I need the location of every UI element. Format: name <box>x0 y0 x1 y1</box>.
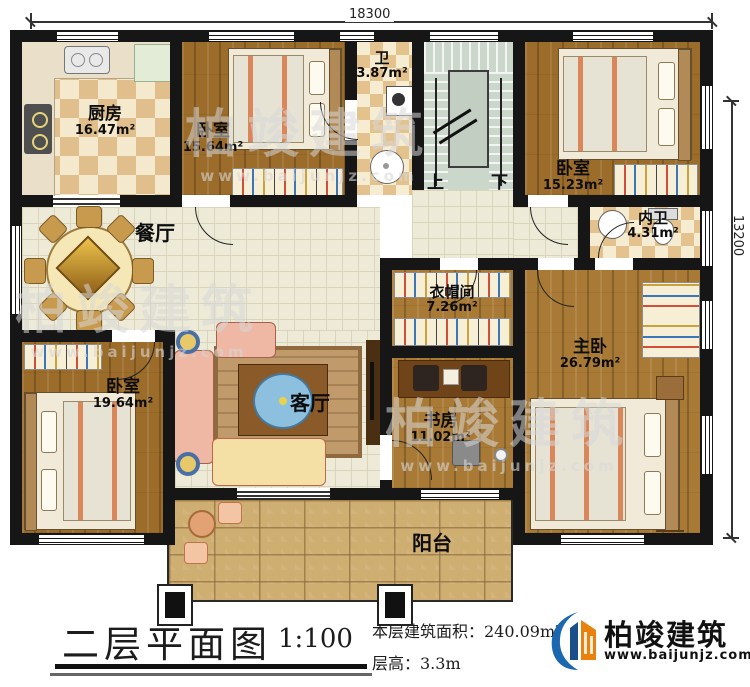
side-table <box>176 330 200 354</box>
room-label-bedroom-top: 卧室 15.64m² <box>168 122 258 155</box>
master-wardrobe <box>642 282 700 358</box>
stove <box>24 104 52 154</box>
desk-chair <box>461 365 487 391</box>
title-underline <box>55 664 367 669</box>
pillow <box>309 61 325 95</box>
burner <box>32 134 48 150</box>
plan-scale: 1:100 <box>278 624 353 654</box>
washing-machine <box>386 86 413 116</box>
room-label-living: 客厅 <box>270 392 350 414</box>
sink-basin <box>89 53 103 67</box>
pillow <box>41 469 57 511</box>
pillow <box>644 413 661 457</box>
window <box>339 30 375 42</box>
wall <box>412 42 424 190</box>
wall <box>392 346 513 358</box>
headboard <box>329 49 341 151</box>
desk-pad <box>443 369 459 385</box>
logo-icon <box>548 610 600 672</box>
side-table <box>176 452 200 476</box>
refrigerator <box>134 44 172 82</box>
nightstand <box>656 376 684 400</box>
room-label-bedroom-topright: 卧室 15.23m² <box>528 160 618 193</box>
kitchen-sink <box>64 46 110 74</box>
hallway-floor-a <box>412 190 513 258</box>
window <box>38 533 145 545</box>
window <box>700 85 713 150</box>
floor-plan-page: { "dimensions": { "width_label": "18300"… <box>0 0 750 687</box>
window <box>560 533 645 545</box>
wall <box>163 488 237 500</box>
dimension-line-right <box>731 100 733 538</box>
burner <box>32 112 48 128</box>
waste-bin <box>494 448 508 462</box>
window <box>700 415 713 475</box>
wardrobe <box>232 168 343 196</box>
headboard <box>25 393 37 531</box>
headboard <box>665 399 679 531</box>
window <box>10 225 22 315</box>
wall <box>170 42 182 200</box>
window <box>429 30 499 42</box>
wall <box>345 195 357 207</box>
dining-living-floor-joint <box>175 330 380 342</box>
sliding-door-rail <box>237 491 330 493</box>
room-label-bathroom: 卫 3.87m² <box>352 50 412 81</box>
wall <box>10 330 112 342</box>
dining-chair <box>76 206 102 228</box>
room-label-ensuite: 内卫 4.31m² <box>618 210 688 241</box>
desk-chair <box>413 365 439 391</box>
pillow <box>658 62 675 100</box>
dimension-height-label: 13200 <box>730 211 745 260</box>
wall <box>380 258 392 435</box>
dimension-end <box>723 537 739 539</box>
wall <box>120 195 182 207</box>
bed <box>24 392 136 530</box>
balcony-chair <box>184 542 208 564</box>
basin-drain <box>383 163 389 169</box>
wardrobe <box>24 344 102 370</box>
wall <box>230 195 345 207</box>
sink-basin <box>71 53 85 67</box>
room-label-cloakroom: 衣帽间 7.26m² <box>412 284 492 315</box>
wall <box>578 200 590 258</box>
balcony-table <box>188 510 216 538</box>
wash-basin <box>370 150 404 184</box>
room-label-kitchen: 厨房 16.47m² <box>60 105 150 138</box>
wall <box>513 195 528 207</box>
window <box>700 300 713 350</box>
floor-height-text: 层高：3.3m <box>372 650 461 674</box>
headboard <box>678 49 691 161</box>
blanket <box>63 401 131 521</box>
loveseat <box>212 438 326 486</box>
title-underline-thin <box>50 673 372 676</box>
bed <box>558 48 692 160</box>
stairs-up-label: 上 <box>427 168 444 193</box>
column-core <box>385 592 405 618</box>
wall <box>500 488 525 500</box>
logo-url: www.baijunjz.com <box>604 648 750 663</box>
table-centerpiece <box>55 235 120 300</box>
pillow <box>658 108 675 146</box>
balcony-column <box>377 584 413 626</box>
stairs-down-label: 下 <box>491 168 508 193</box>
wall <box>163 330 175 545</box>
stair-treads-top <box>424 42 513 72</box>
column-core <box>165 592 185 618</box>
sliding-door-rail <box>237 495 330 497</box>
balcony-chair <box>218 502 242 524</box>
wall <box>513 533 560 545</box>
dining-chair <box>132 258 154 284</box>
wall <box>513 42 525 207</box>
window <box>208 30 295 42</box>
wall <box>574 258 595 270</box>
dining-chair <box>24 258 46 284</box>
room-label-dining: 餐厅 <box>115 222 195 244</box>
dining-chair <box>76 310 102 332</box>
room-label-bedroom-left: 卧室 19.64m² <box>78 378 168 411</box>
cloakroom-wardrobe <box>394 318 511 346</box>
blanket <box>535 407 626 521</box>
wall <box>22 195 53 207</box>
wall <box>330 488 392 500</box>
study-desk <box>398 360 510 398</box>
pillow <box>644 471 661 515</box>
dimension-end <box>30 13 32 29</box>
nightstand <box>656 530 684 532</box>
blanket <box>563 56 647 153</box>
wall <box>478 258 513 270</box>
pillow <box>41 411 57 453</box>
window <box>572 30 654 42</box>
wardrobe <box>614 164 698 196</box>
tv-screen <box>370 362 374 420</box>
dimension-width-label: 18300 <box>345 7 394 22</box>
kitchen-opening-line <box>53 198 120 200</box>
window <box>420 488 500 500</box>
wall <box>645 533 713 545</box>
dimension-end <box>711 13 713 29</box>
wall <box>392 488 420 500</box>
wall <box>513 258 525 545</box>
tv-cabinet <box>366 340 380 445</box>
room-label-master: 主卧 26.79m² <box>545 338 635 371</box>
sofa <box>174 350 214 464</box>
balcony-column <box>157 584 193 626</box>
window <box>56 30 119 42</box>
master-bed <box>530 398 680 530</box>
room-label-study: 书房 11.02m² <box>398 412 483 445</box>
armchair <box>216 322 276 358</box>
dimension-end <box>723 100 739 102</box>
room-label-balcony: 阳台 <box>392 532 472 554</box>
kitchen-opening-line <box>53 203 120 205</box>
washer-door <box>392 93 405 106</box>
window <box>700 210 713 267</box>
